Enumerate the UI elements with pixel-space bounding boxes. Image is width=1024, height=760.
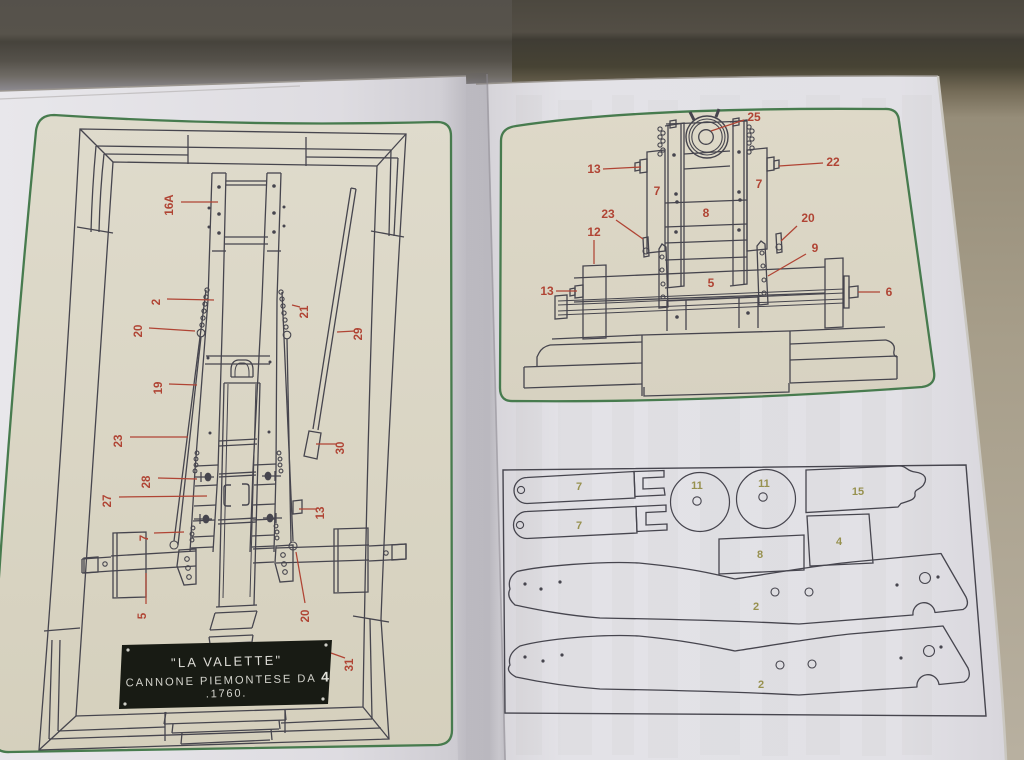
svg-text:2: 2 [758, 679, 764, 691]
svg-text:22: 22 [826, 155, 840, 169]
svg-text:7: 7 [139, 535, 151, 541]
svg-text:7: 7 [654, 184, 661, 198]
svg-text:4: 4 [321, 668, 329, 684]
svg-text:7: 7 [756, 177, 763, 191]
svg-text:7: 7 [576, 481, 582, 493]
svg-text:4: 4 [836, 536, 843, 548]
svg-text:11: 11 [691, 480, 703, 492]
svg-text:25: 25 [747, 110, 761, 124]
svg-text:23: 23 [601, 207, 615, 221]
svg-text:5: 5 [137, 612, 149, 619]
svg-text:20: 20 [300, 610, 312, 623]
svg-text:27: 27 [102, 495, 114, 508]
svg-text:.1760.: .1760. [206, 687, 248, 700]
svg-text:28: 28 [141, 475, 153, 488]
svg-text:31: 31 [344, 658, 356, 671]
svg-text:9: 9 [812, 241, 819, 255]
svg-text:6: 6 [886, 285, 893, 299]
svg-text:5: 5 [708, 276, 715, 290]
svg-text:23: 23 [113, 435, 125, 448]
svg-text:13: 13 [540, 284, 554, 298]
svg-text:20: 20 [801, 211, 815, 225]
svg-text:8: 8 [703, 206, 710, 220]
svg-text:"LA VALETTE": "LA VALETTE" [171, 653, 283, 671]
svg-text:2: 2 [753, 601, 759, 613]
svg-text:7: 7 [576, 520, 582, 532]
svg-text:20: 20 [133, 325, 145, 338]
svg-text:8: 8 [757, 549, 763, 561]
svg-text:13: 13 [587, 162, 601, 176]
svg-text:21: 21 [299, 305, 311, 318]
svg-text:19: 19 [153, 382, 165, 395]
svg-text:29: 29 [353, 328, 365, 341]
svg-text:12: 12 [587, 225, 601, 239]
svg-text:11: 11 [758, 478, 770, 490]
svg-text:16A: 16A [164, 194, 176, 215]
svg-text:13: 13 [315, 507, 327, 520]
svg-text:2: 2 [151, 299, 163, 305]
svg-text:15: 15 [852, 486, 864, 498]
